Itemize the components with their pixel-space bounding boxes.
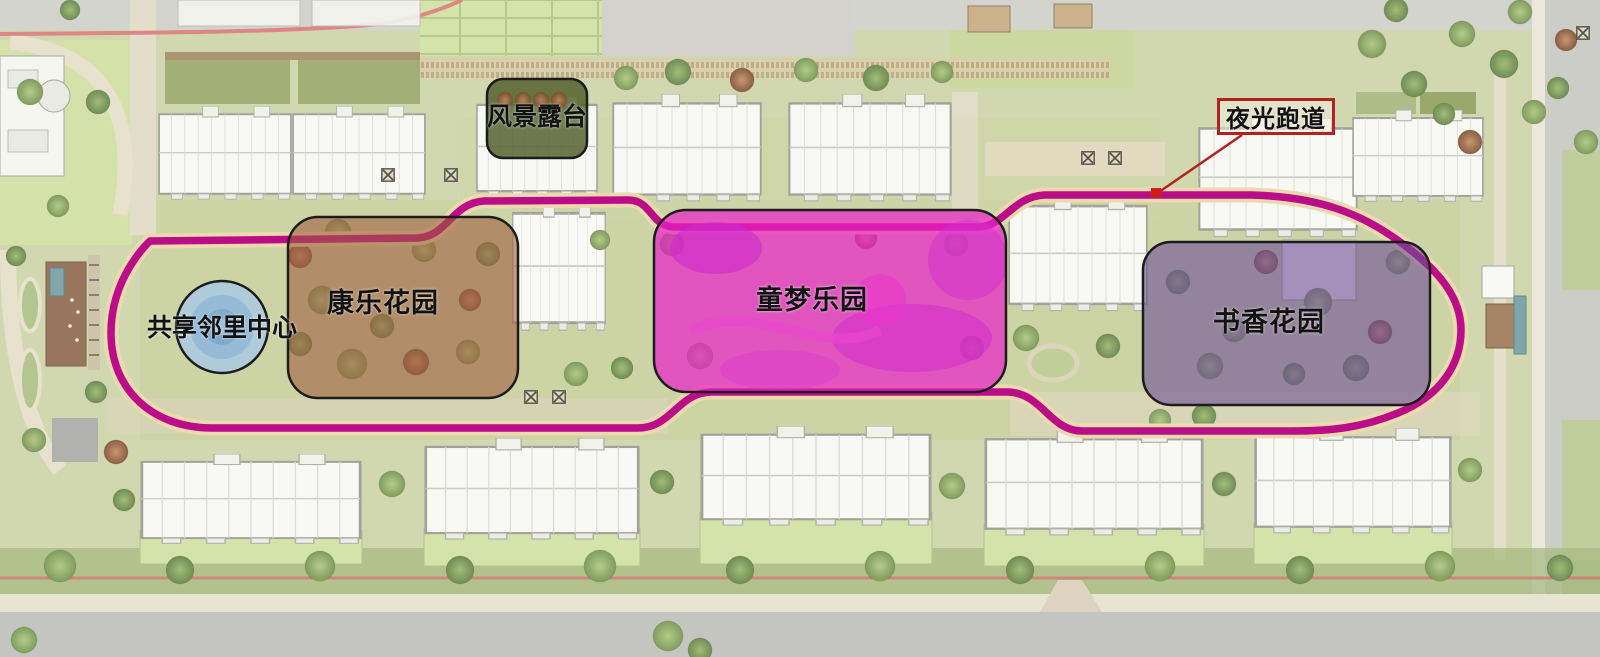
label-shared-neighborhood-center: 共享邻里中心 xyxy=(147,315,297,341)
label-recreation-garden: 康乐花园 xyxy=(308,289,458,317)
label-scenic-terrace: 风景露台 xyxy=(487,104,587,130)
callout-luminous-track: 夜光跑道 xyxy=(1217,98,1335,135)
site-plan: 风景露台 共享邻里中心 康乐花园 童梦乐园 书香花园 夜光跑道 xyxy=(0,0,1600,657)
label-scholar-garden: 书香花园 xyxy=(1194,308,1344,336)
label-children-dream-park: 童梦乐园 xyxy=(737,286,887,314)
callout-luminous-track-label: 夜光跑道 xyxy=(1226,99,1326,134)
callout-marker xyxy=(1151,188,1161,198)
